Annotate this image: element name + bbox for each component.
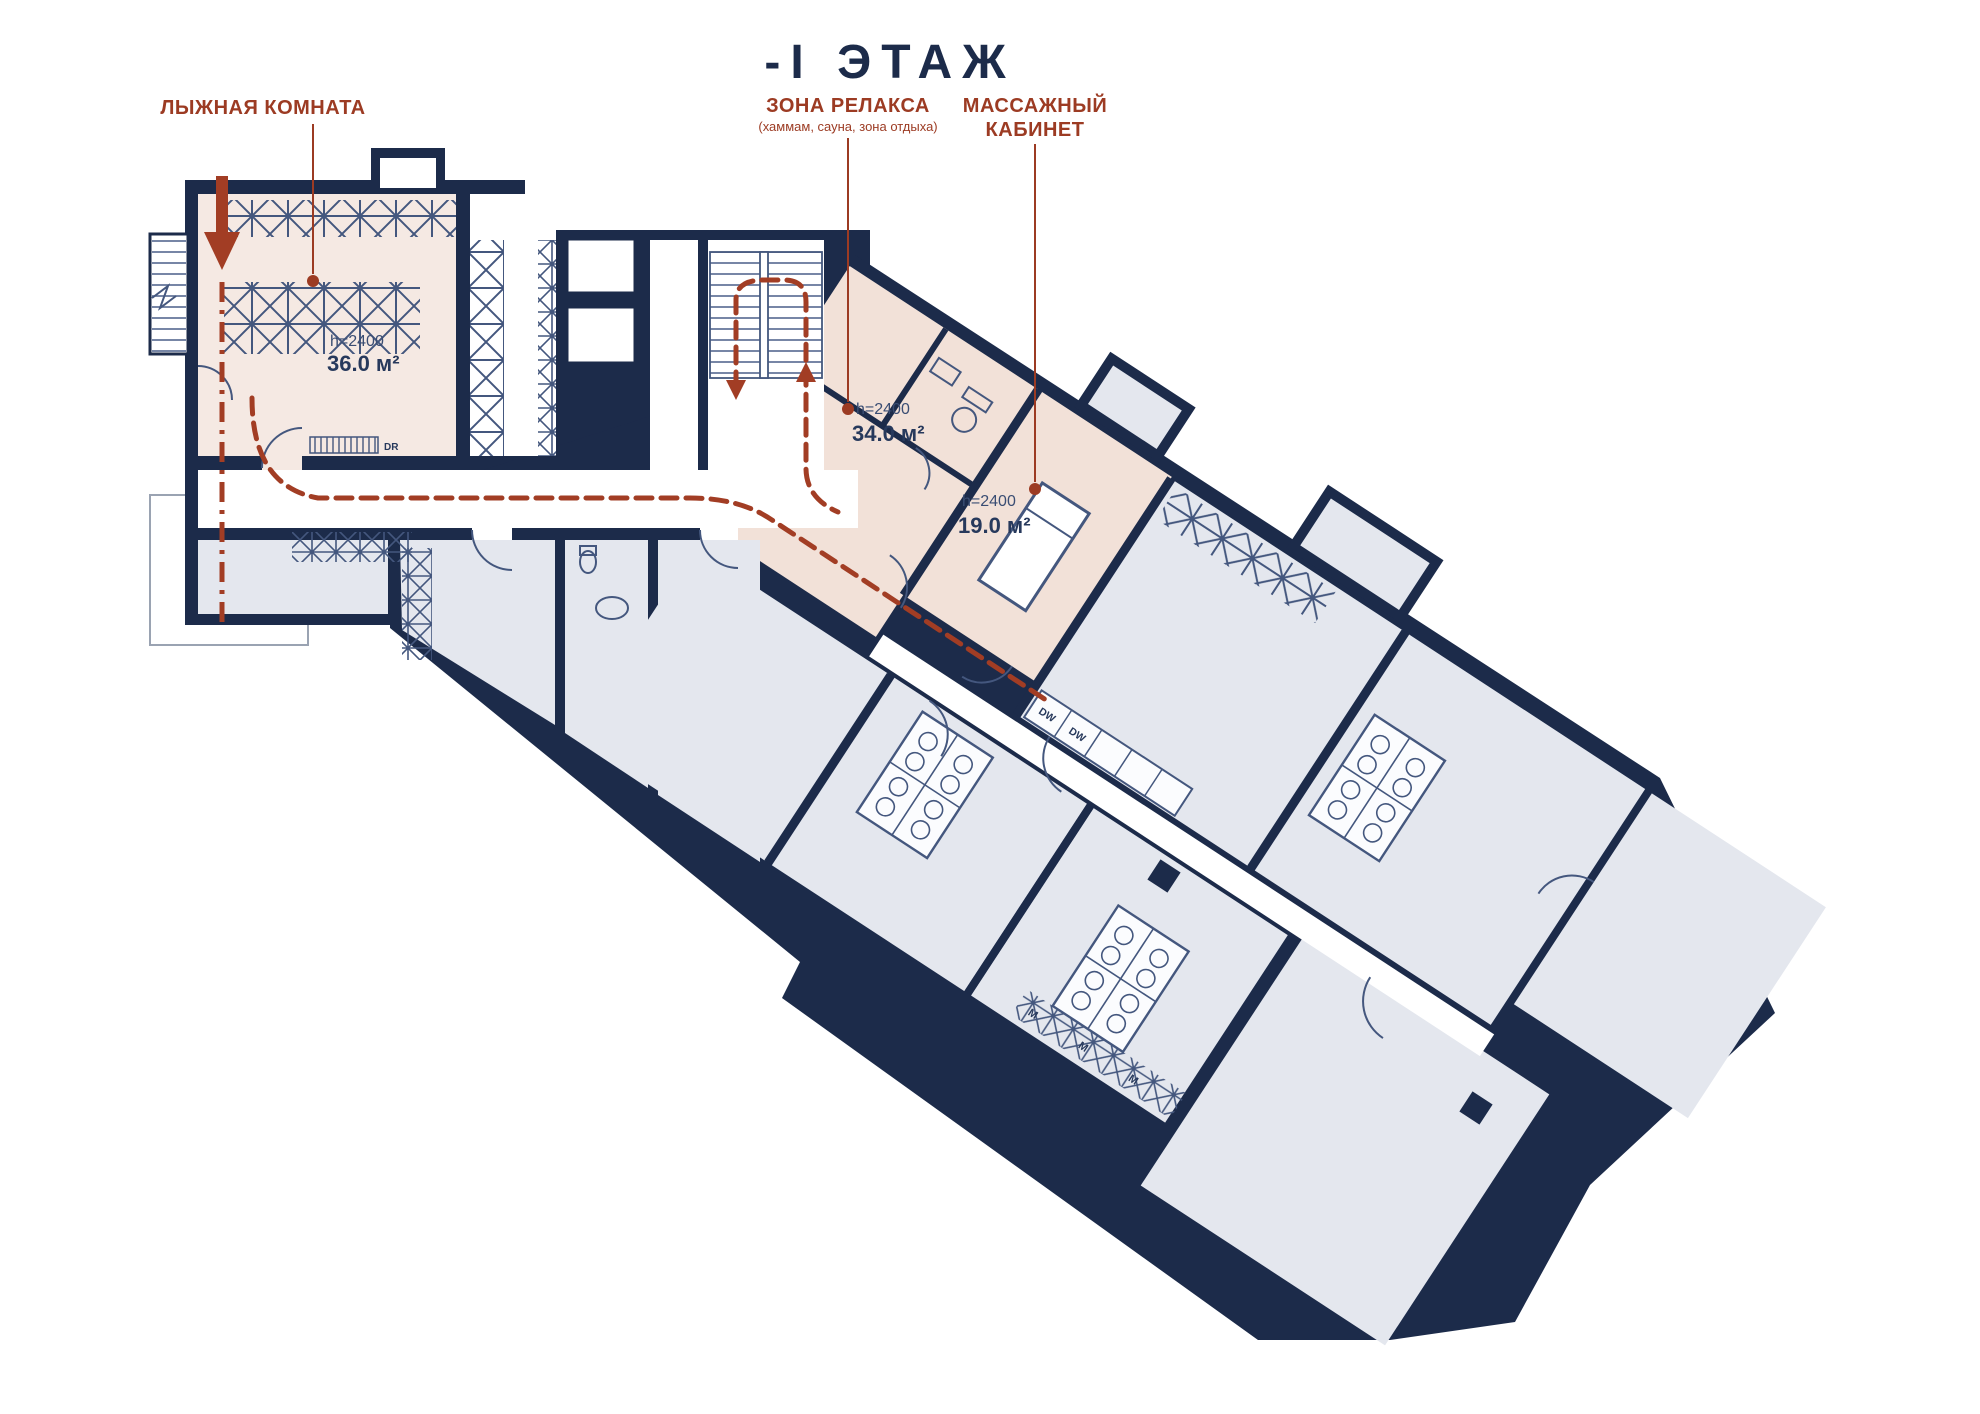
ski-room-label: ЛЫЖНАЯ КОМНАТА (160, 97, 365, 119)
floor-plan-svg: M M M DW DW (0, 0, 1980, 1414)
relax-zone-label: ЗОНА РЕЛАКСА (766, 95, 930, 117)
massage-room-height: h=2400 (962, 493, 1016, 510)
shaft-bump-interior (380, 158, 436, 188)
storage-rack-column (470, 240, 504, 456)
massage-room-area: 19.0 м² (958, 513, 1031, 538)
ski-room-height: h=2400 (330, 333, 384, 350)
wardrobe-strip (402, 548, 432, 660)
wardrobe-strip (292, 532, 412, 562)
relax-zone-sublabel: (хаммам, сауна, зона отдыха) (758, 119, 937, 134)
massage-room-label2: КАБИНЕТ (986, 119, 1085, 141)
floor-plan-page: M M M DW DW (0, 0, 1980, 1414)
stair-stringer (760, 252, 768, 378)
ski-rack-rows (224, 282, 420, 354)
ski-room-area: 36.0 м² (327, 351, 400, 376)
relax-zone-height: h=2400 (856, 401, 910, 418)
dryer-label: DR (384, 442, 399, 453)
massage-room-label: МАССАЖНЫЙ (963, 93, 1107, 117)
entrance-arrow-shaft (216, 176, 228, 234)
page-title: -I ЭТАЖ (764, 36, 1015, 89)
lobby-room (650, 240, 698, 470)
elevator-shaft (564, 236, 638, 296)
ski-rack-row (224, 200, 456, 237)
elevator-shaft (564, 304, 638, 366)
ski-bench (310, 437, 378, 453)
storage-rack-column (538, 240, 556, 456)
relax-zone-area: 34.0 м² (852, 421, 925, 446)
